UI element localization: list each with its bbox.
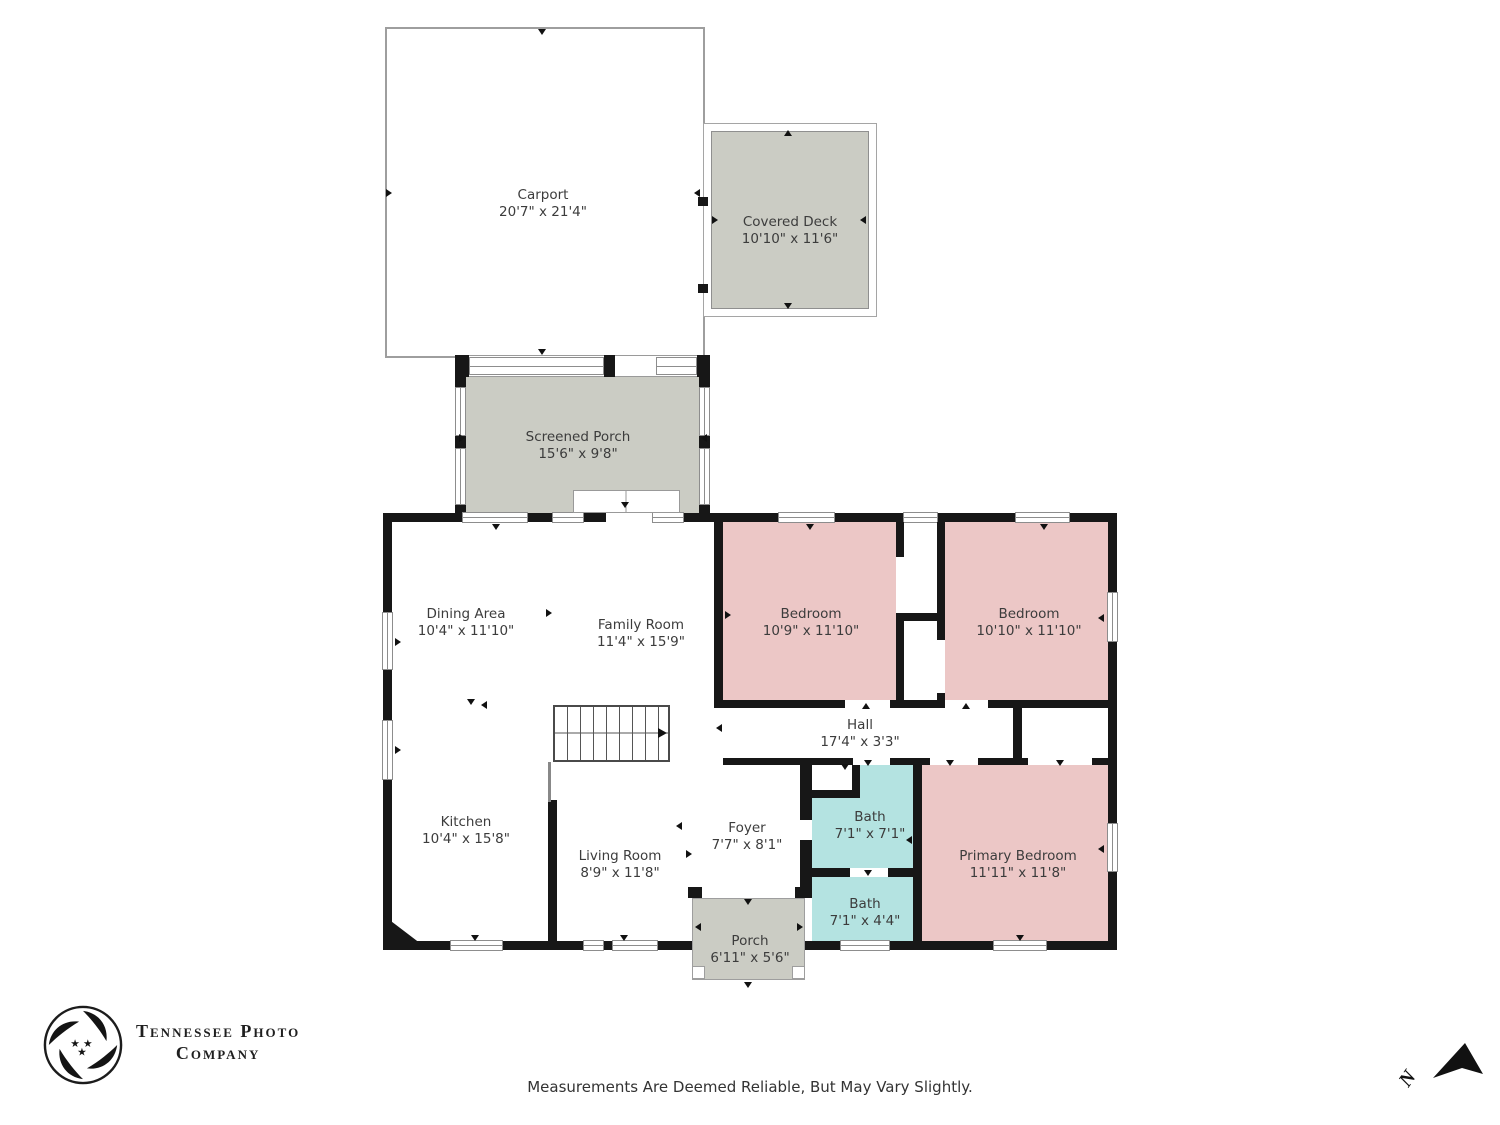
wall: [697, 355, 710, 377]
room-name: Bedroom: [976, 606, 1081, 623]
wall: [604, 355, 615, 377]
room-name: Primary Bedroom: [959, 848, 1077, 865]
marker-icon: [386, 189, 392, 197]
window: [699, 448, 710, 505]
window: [652, 512, 684, 523]
marker-icon: [481, 701, 487, 709]
wall: [548, 800, 557, 941]
marker-icon: [694, 189, 700, 197]
room-name: Dining Area: [418, 606, 515, 623]
window: [656, 357, 697, 375]
marker-icon: [712, 216, 718, 224]
marker-icon: [467, 699, 475, 705]
marker-icon: [1016, 935, 1024, 941]
window: [455, 387, 466, 436]
marker-icon: [686, 850, 692, 858]
room-dims: 17'4" x 3'3": [820, 734, 899, 751]
window: [583, 940, 604, 951]
wall: [714, 700, 1117, 708]
marker-icon: [797, 923, 803, 931]
porch-post: [792, 966, 805, 979]
room-name: Kitchen: [422, 814, 510, 831]
room-label-kitchen: Kitchen 10'4" x 15'8": [422, 814, 510, 847]
window: [450, 940, 503, 951]
wall: [896, 522, 904, 557]
room-name: Bath: [830, 896, 901, 913]
stairs-direction-icon: [658, 728, 667, 738]
stairs: [553, 705, 670, 762]
room-label-covered-deck: Covered Deck 10'10" x 11'6": [742, 214, 839, 247]
marker-icon: [459, 434, 465, 442]
room-name: Carport: [499, 187, 587, 204]
door-swing-icon: [744, 899, 752, 905]
marker-icon: [471, 935, 479, 941]
wall: [698, 284, 708, 293]
door-gap: [800, 820, 812, 840]
marker-icon: [620, 935, 628, 941]
room-name: Family Room: [597, 617, 685, 634]
marker-icon: [1098, 614, 1104, 622]
room-dims: 7'7" x 8'1": [712, 837, 783, 854]
room-label-family-room: Family Room 11'4" x 15'9": [597, 617, 685, 650]
marker-icon: [784, 303, 792, 309]
wall: [800, 790, 860, 798]
window: [462, 512, 528, 523]
wall: [455, 377, 466, 387]
room-name: Covered Deck: [742, 214, 839, 231]
disclaimer-text: Measurements Are Deemed Reliable, But Ma…: [0, 1078, 1500, 1096]
room-label-primary-bedroom: Primary Bedroom 11'11" x 11'8": [959, 848, 1077, 881]
door-swing-icon: [946, 760, 954, 766]
door-swing-icon: [864, 760, 872, 766]
room-name: Living Room: [579, 848, 662, 865]
room-label-bath-lower: Bath 7'1" x 4'4": [830, 896, 901, 929]
marker-icon: [395, 746, 401, 754]
room-label-dining-area: Dining Area 10'4" x 11'10": [418, 606, 515, 639]
marker-icon: [906, 836, 912, 844]
room-label-screened-porch: Screened Porch 15'6" x 9'8": [526, 429, 631, 462]
door-gap: [606, 512, 652, 523]
room-name: Hall: [820, 717, 899, 734]
wall: [913, 765, 922, 941]
wall: [896, 613, 904, 705]
window: [612, 940, 658, 951]
room-label-living-room: Living Room 8'9" x 11'8": [579, 848, 662, 881]
window: [993, 940, 1047, 951]
marker-icon: [546, 609, 552, 617]
marker-icon: [784, 130, 792, 136]
window: [903, 512, 938, 523]
room-label-porch: Porch 6'11" x 5'6": [710, 933, 789, 966]
marker-icon: [695, 923, 701, 931]
window: [1107, 592, 1118, 642]
door-swing-icon: [841, 764, 849, 770]
room-dims: 10'10" x 11'10": [976, 623, 1081, 640]
marker-icon: [806, 524, 814, 530]
room-name: Bedroom: [763, 606, 860, 623]
room-dims: 15'6" x 9'8": [526, 446, 631, 463]
room-dims: 11'4" x 15'9": [597, 634, 685, 651]
room-name: Screened Porch: [526, 429, 631, 446]
room-label-carport: Carport 20'7" x 21'4": [499, 187, 587, 220]
room-label-bedroom-left: Bedroom 10'9" x 11'10": [763, 606, 860, 639]
door-gap: [930, 758, 978, 765]
room-name: Foyer: [712, 820, 783, 837]
wall: [455, 355, 469, 377]
marker-icon: [701, 434, 707, 442]
wall: [1108, 513, 1117, 950]
window: [778, 512, 835, 523]
company-logo: ★ ★ ★ Tennessee Photo Company: [42, 1004, 300, 1086]
marker-icon: [744, 982, 752, 988]
room-dims: 10'9" x 11'10": [763, 623, 860, 640]
wall: [1013, 708, 1022, 758]
window: [552, 512, 584, 523]
room-dims: 11'11" x 11'8": [959, 865, 1077, 882]
room-dims: 8'9" x 11'8": [579, 865, 662, 882]
marker-icon: [492, 524, 500, 530]
window: [699, 387, 710, 436]
wall: [937, 522, 945, 640]
room-label-foyer: Foyer 7'7" x 8'1": [712, 820, 783, 853]
door-swing-icon: [621, 502, 629, 508]
room-name: Bath: [835, 809, 906, 826]
shutter-logo-icon: ★ ★ ★: [42, 1004, 124, 1086]
room-label-bedroom-right: Bedroom 10'10" x 11'10": [976, 606, 1081, 639]
room-dims: 10'4" x 11'10": [418, 623, 515, 640]
room-dims: 7'1" x 7'1": [835, 826, 906, 843]
window: [1107, 823, 1118, 872]
window: [382, 612, 393, 670]
marker-icon: [725, 611, 731, 619]
room-label-bath-upper: Bath 7'1" x 7'1": [835, 809, 906, 842]
wall: [698, 197, 708, 206]
marker-icon: [538, 349, 546, 355]
stair-rail: [548, 762, 551, 802]
window: [469, 357, 604, 375]
wall: [714, 522, 723, 705]
room-dims: 7'1" x 4'4": [830, 913, 901, 930]
room-dims: 6'11" x 5'6": [710, 950, 789, 967]
wall: [795, 887, 808, 898]
marker-icon: [1098, 845, 1104, 853]
marker-icon: [676, 822, 682, 830]
wall: [699, 377, 710, 387]
logo-line2: Company: [136, 1042, 300, 1064]
window: [382, 720, 393, 780]
porch-post: [692, 966, 705, 979]
window: [455, 448, 466, 505]
room-dims: 10'4" x 15'8": [422, 831, 510, 848]
wall: [688, 887, 702, 898]
marker-icon: [1040, 524, 1048, 530]
door-swing-icon: [862, 703, 870, 709]
floor-plan: Carport 20'7" x 21'4" Covered Deck 10'10…: [0, 0, 1500, 1125]
window: [1015, 512, 1070, 523]
room-label-hall: Hall 17'4" x 3'3": [820, 717, 899, 750]
room-dims: 20'7" x 21'4": [499, 204, 587, 221]
door-swing-icon: [1056, 760, 1064, 766]
door-swing-icon: [864, 870, 872, 876]
room-dims: 10'10" x 11'6": [742, 231, 839, 248]
logo-line1: Tennessee Photo: [136, 1020, 300, 1042]
marker-icon: [395, 638, 401, 646]
wall: [896, 613, 945, 621]
door-swing-icon: [716, 724, 722, 732]
room-name: Porch: [710, 933, 789, 950]
door-swing-icon: [962, 703, 970, 709]
svg-text:★: ★: [77, 1046, 87, 1059]
marker-icon: [860, 216, 866, 224]
marker-icon: [538, 29, 546, 35]
window: [840, 940, 890, 951]
